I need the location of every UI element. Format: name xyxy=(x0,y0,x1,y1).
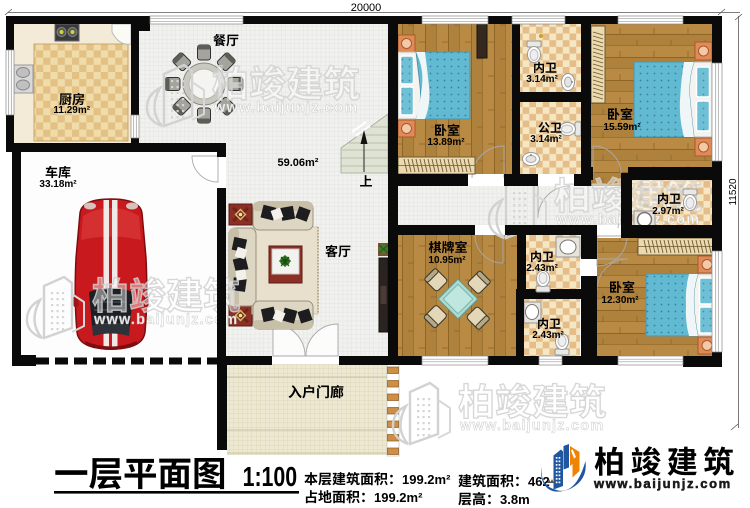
svg-text:3.14m²: 3.14m² xyxy=(530,134,562,145)
svg-text:11520: 11520 xyxy=(728,178,739,206)
svg-text:20000: 20000 xyxy=(351,2,382,14)
svg-text:12.30m²: 12.30m² xyxy=(601,295,639,306)
svg-text:15.59m²: 15.59m² xyxy=(603,122,641,133)
svg-text:59.06m²: 59.06m² xyxy=(278,157,319,169)
svg-text:199.2m²: 199.2m² xyxy=(374,490,423,505)
svg-text:www.baijunjz.com: www.baijunjz.com xyxy=(213,100,358,116)
svg-text:13.89m²: 13.89m² xyxy=(427,137,465,148)
svg-text:33.18m²: 33.18m² xyxy=(39,179,77,190)
svg-text:www.baijunjz.com: www.baijunjz.com xyxy=(459,418,604,434)
svg-text:3.14m²: 3.14m² xyxy=(526,74,558,85)
svg-text:3.8m: 3.8m xyxy=(500,492,530,507)
svg-text:www.baijunjz.com: www.baijunjz.com xyxy=(593,476,732,491)
svg-text:2.43m²: 2.43m² xyxy=(526,263,558,274)
svg-text:10.95m²: 10.95m² xyxy=(428,255,466,266)
svg-text:www.baijunjz.com: www.baijunjz.com xyxy=(93,312,238,328)
svg-text:199.2m²: 199.2m² xyxy=(402,472,451,487)
svg-text:2.43m²: 2.43m² xyxy=(532,330,564,341)
svg-text:2.97m²: 2.97m² xyxy=(652,206,684,217)
svg-text:11.29m²: 11.29m² xyxy=(53,105,90,116)
svg-text:1:100: 1:100 xyxy=(243,461,298,492)
